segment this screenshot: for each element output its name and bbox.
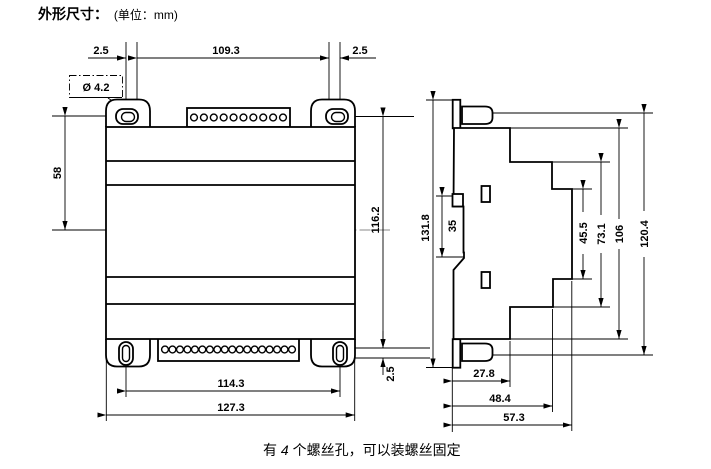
dim-body-height-label: 116.2: [370, 207, 382, 234]
dim-din-rail-slot-label: 35: [447, 220, 459, 232]
dim-depth-to-step2: 48.4: [452, 393, 552, 406]
side-module-body: [453, 100, 573, 368]
dim-step-depth-1-label: 45.5: [578, 222, 590, 243]
dimension-drawing-page: 外形尺寸： (单位：mm) 2.5 109.3 2.5 Ø 4.2: [0, 0, 711, 469]
front-view: 2.5 109.3 2.5 Ø 4.2 58 116.2: [52, 42, 430, 421]
dim-depth-to-step1: 27.8: [452, 368, 510, 381]
dim-top-hole-span-label: 109.3: [212, 45, 240, 57]
dim-step-depth-1: 45.5: [578, 189, 590, 279]
dim-screw-hole-dia-label: Ø 4.2: [83, 82, 110, 94]
dim-overall-width-label: 127.3: [217, 402, 245, 414]
dim-depth-to-step1-label: 27.8: [473, 368, 494, 380]
din-clip-hook: [453, 194, 464, 207]
side-ear-tab-top: [453, 100, 461, 129]
top-terminal-block: [187, 108, 290, 127]
front-body-outline: [106, 127, 355, 339]
dim-side-body-height-label: 106: [614, 225, 626, 243]
dim-hole-spacing: 114.3: [126, 367, 340, 397]
dim-side-body-height: 106: [614, 128, 626, 339]
footnote-prefix: 有: [263, 442, 281, 458]
footnote-count: 4: [281, 442, 289, 458]
dim-bottom-ear-offset-label: 2.5: [385, 366, 397, 381]
side-screw-boss-top: [462, 107, 493, 125]
dim-overall-with-ears-label: 120.4: [639, 219, 651, 247]
dim-hole-spacing-label: 114.3: [218, 378, 245, 390]
side-view: 131.8 35 45.5 73.1: [420, 100, 653, 432]
dim-side-overall-height-label: 131.8: [420, 214, 432, 242]
dim-overall-with-ears: 120.4: [639, 113, 651, 355]
front-module-body: [106, 100, 355, 367]
title-unit: (单位：mm): [114, 7, 178, 22]
drawing-canvas: 外形尺寸： (单位：mm) 2.5 109.3 2.5 Ø 4.2: [0, 0, 711, 469]
title-heading: 外形尺寸：: [38, 6, 108, 22]
dim-top-left-offset-label: 2.5: [93, 45, 108, 57]
side-screw-boss-bottom: [462, 344, 493, 362]
dim-overall-height: 131.8: [420, 100, 452, 368]
page-title: 外形尺寸： (单位：mm): [38, 6, 178, 22]
side-ear-tab-bottom: [453, 339, 461, 368]
dim-top-right-offset-label: 2.5: [352, 45, 367, 57]
dim-body-height: 116.2: [348, 117, 414, 349]
dim-step-depth-2: 73.1: [596, 162, 608, 307]
dim-overall-depth-label: 57.3: [503, 412, 524, 424]
dim-upper-height-label: 58: [52, 167, 64, 179]
dim-depth-to-step2-label: 48.4: [489, 393, 511, 405]
footnote-suffix: 个螺丝孔，可以装螺丝固定: [293, 442, 461, 458]
dim-overall-depth: 57.3: [452, 412, 572, 425]
dim-step-depth-2-label: 73.1: [596, 223, 608, 244]
footnote: 有 4 个螺丝孔，可以装螺丝固定: [263, 442, 461, 458]
